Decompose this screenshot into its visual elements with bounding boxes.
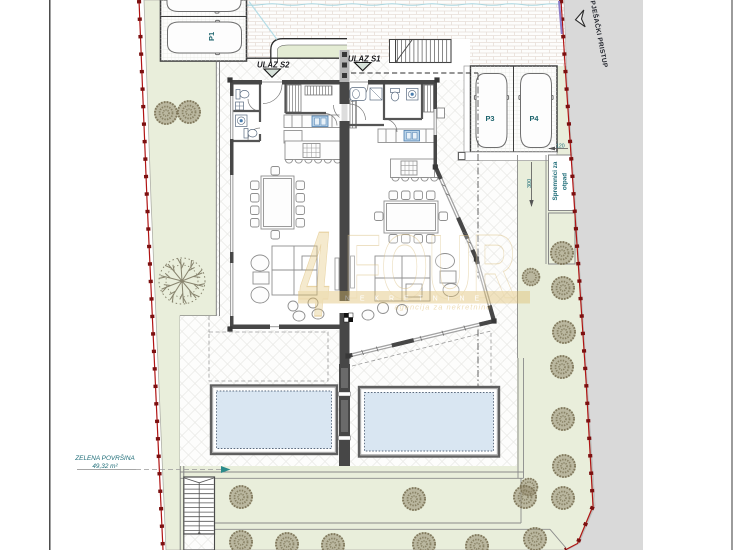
svg-text:P4: P4	[530, 114, 540, 123]
svg-text:agencija za nekretnine: agencija za nekretnine	[394, 303, 491, 312]
svg-text:Spremnici za: Spremnici za	[552, 161, 559, 200]
svg-text:ZELENA POVRŠINA: ZELENA POVRŠINA	[74, 453, 134, 462]
svg-text:N E K R E T N I N E: N E K R E T N I N E	[345, 296, 483, 303]
svg-text:ULAZ S2: ULAZ S2	[257, 61, 290, 70]
svg-text:49,32 m²: 49,32 m²	[92, 463, 118, 470]
svg-text:P1: P1	[207, 32, 216, 41]
svg-text:P3: P3	[486, 114, 495, 123]
svg-text:300: 300	[527, 179, 533, 188]
svg-text:4: 4	[299, 206, 330, 342]
svg-text:120: 120	[556, 144, 565, 150]
svg-text:otpad: otpad	[562, 173, 569, 190]
